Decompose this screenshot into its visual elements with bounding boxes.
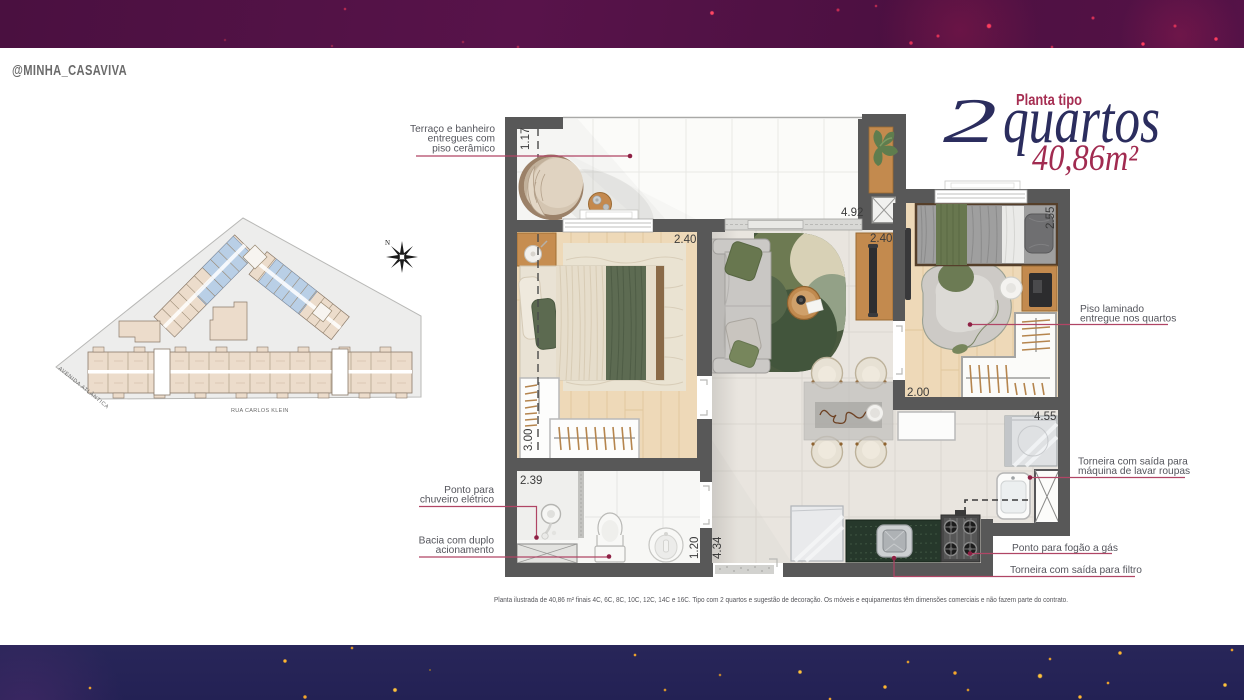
svg-text:2.40: 2.40 xyxy=(870,233,892,245)
svg-text:4.55: 4.55 xyxy=(1034,411,1056,423)
svg-text:Terraço e banheiroentregues co: Terraço e banheiroentregues compiso cerâ… xyxy=(410,124,495,154)
svg-text:4.34: 4.34 xyxy=(712,536,724,559)
svg-text:3.00: 3.00 xyxy=(523,429,535,451)
svg-text:Ponto parachuveiro elétrico: Ponto parachuveiro elétrico xyxy=(420,485,495,506)
svg-text:Torneira com saída para filtro: Torneira com saída para filtro xyxy=(1010,565,1142,576)
svg-text:N: N xyxy=(385,239,390,247)
svg-text:Ponto para fogão a gás: Ponto para fogão a gás xyxy=(1012,543,1118,554)
svg-text:Torneira com saída paramáquin: Torneira com saída paramáquina de lavar … xyxy=(1078,457,1190,478)
svg-text:2.40: 2.40 xyxy=(674,234,696,246)
svg-text:Planta ilustrada de 40,86 m² f: Planta ilustrada de 40,86 m² finais 4C, … xyxy=(494,595,1068,604)
svg-text:2.55: 2.55 xyxy=(1045,207,1057,229)
svg-text:2: 2 xyxy=(943,85,997,156)
svg-text:Piso laminadoentregue nos quar: Piso laminadoentregue nos quartos xyxy=(1080,304,1176,325)
svg-text:Bacia com duploacionamento: Bacia com duploacionamento xyxy=(419,536,495,557)
svg-text:2.00: 2.00 xyxy=(907,387,929,399)
svg-text:1.17: 1.17 xyxy=(520,128,532,150)
svg-text:@MINHA_CASAVIVA: @MINHA_CASAVIVA xyxy=(12,63,127,79)
svg-text:4.92: 4.92 xyxy=(841,207,863,219)
svg-text:2.39: 2.39 xyxy=(520,475,542,487)
svg-text:40,86m²: 40,86m² xyxy=(1032,138,1139,179)
svg-text:1.20: 1.20 xyxy=(689,537,701,559)
svg-text:RUA CARLOS KLEIN: RUA CARLOS KLEIN xyxy=(231,408,289,414)
